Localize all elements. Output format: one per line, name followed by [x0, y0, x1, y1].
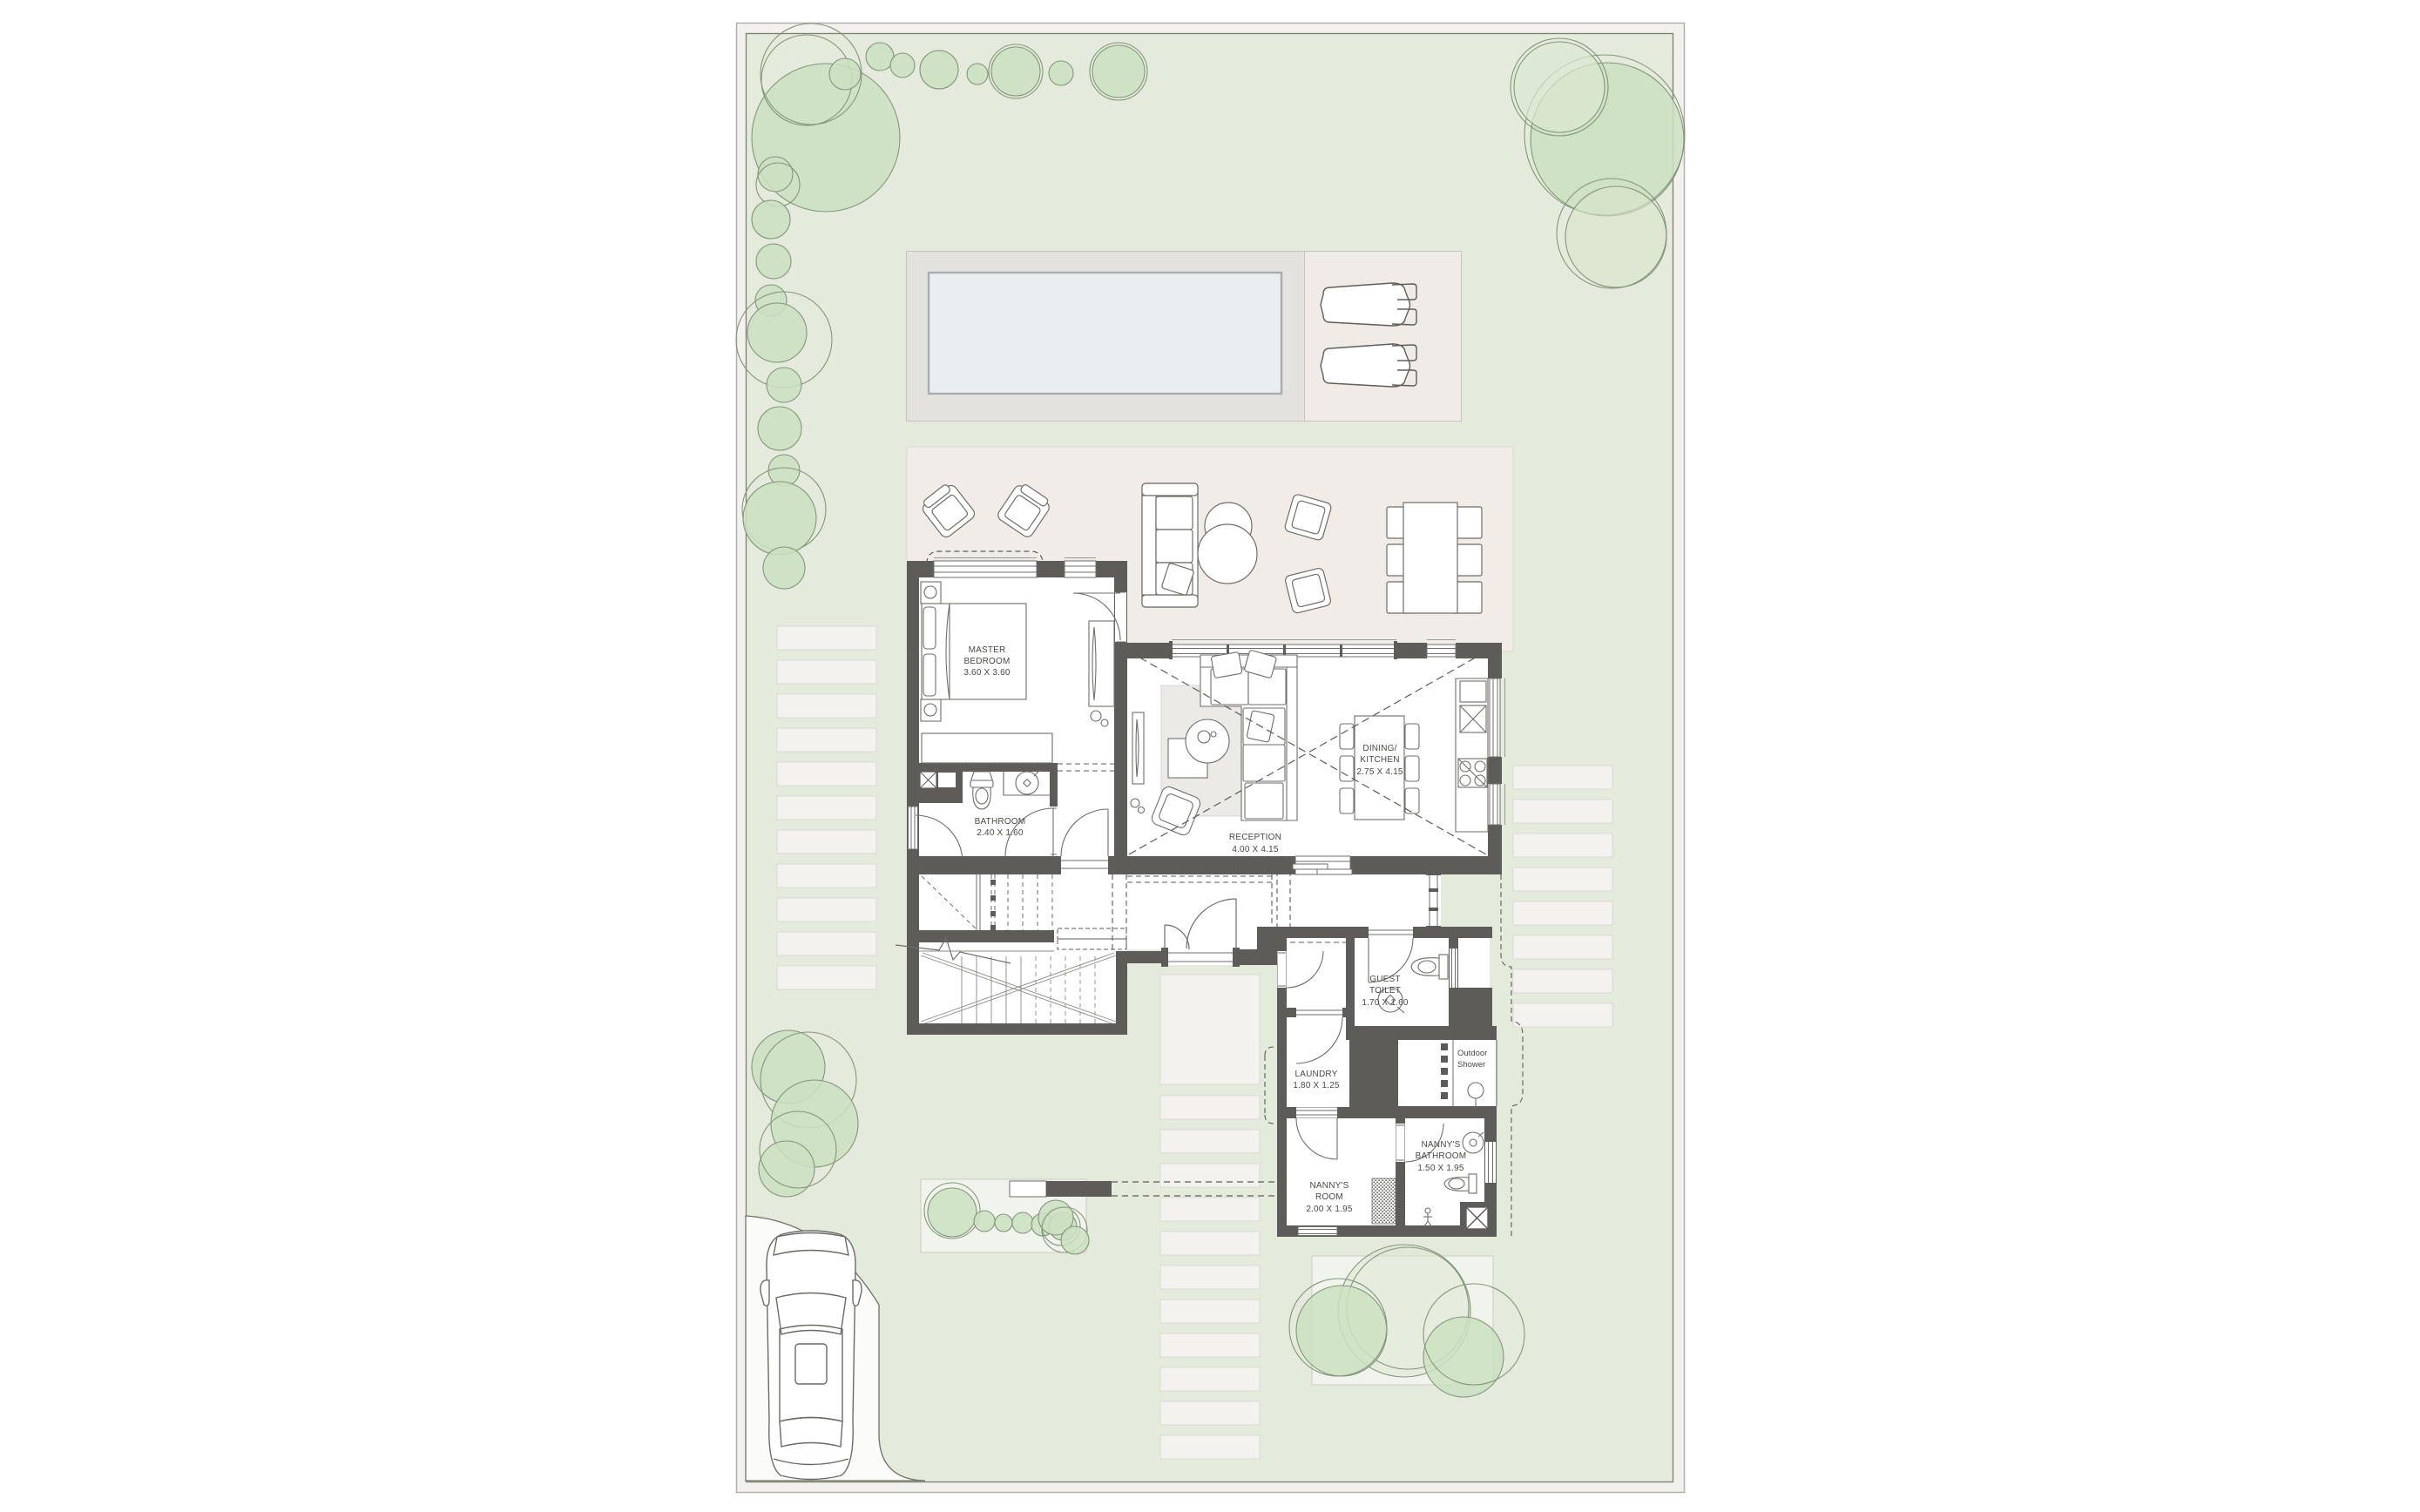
svg-text:KITCHEN: KITCHEN	[1360, 755, 1399, 765]
svg-text:2.40 X 1.60: 2.40 X 1.60	[977, 828, 1024, 838]
svg-text:Outdoor: Outdoor	[1457, 1049, 1487, 1058]
svg-text:NANNY'S: NANNY'S	[1422, 1140, 1461, 1150]
svg-text:2.00 X 1.95: 2.00 X 1.95	[1306, 1205, 1353, 1214]
svg-text:TOILET: TOILET	[1369, 986, 1401, 996]
svg-text:1.80 X 1.25: 1.80 X 1.25	[1293, 1081, 1340, 1090]
svg-text:BATHROOM: BATHROOM	[975, 817, 1026, 827]
svg-text:DINING/: DINING/	[1362, 744, 1396, 753]
svg-text:3.60 X 3.60: 3.60 X 3.60	[963, 668, 1011, 678]
svg-text:ROOM: ROOM	[1315, 1192, 1343, 1202]
svg-text:1.50 X 1.95: 1.50 X 1.95	[1417, 1164, 1464, 1173]
svg-text:BEDROOM: BEDROOM	[963, 657, 1010, 666]
svg-text:BATHROOM: BATHROOM	[1416, 1151, 1467, 1161]
svg-text:4.00 X 4.15: 4.00 X 4.15	[1232, 845, 1279, 854]
svg-text:2.75 X 4.15: 2.75 X 4.15	[1356, 767, 1403, 777]
svg-text:1.70 X 1.60: 1.70 X 1.60	[1362, 998, 1409, 1008]
svg-text:LAUNDRY: LAUNDRY	[1294, 1070, 1337, 1079]
svg-text:MASTER: MASTER	[969, 645, 1006, 655]
svg-text:RECEPTION: RECEPTION	[1229, 833, 1281, 842]
svg-text:Shower: Shower	[1457, 1060, 1485, 1070]
svg-text:GUEST: GUEST	[1369, 975, 1400, 984]
svg-text:NANNY'S: NANNY'S	[1310, 1181, 1349, 1191]
